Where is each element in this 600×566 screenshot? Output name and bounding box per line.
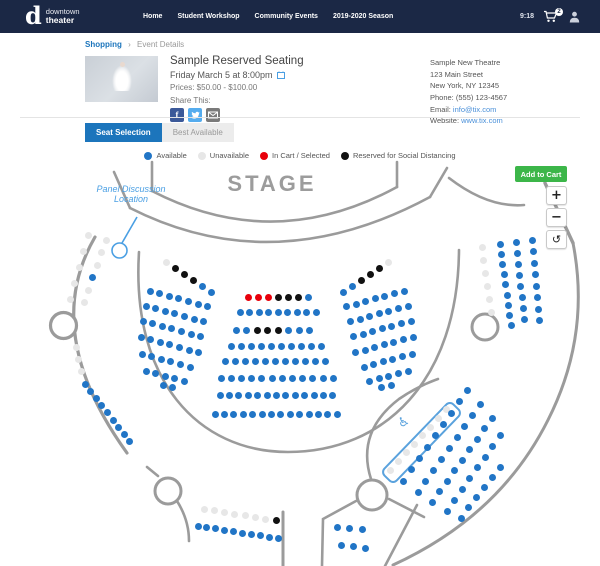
seat <box>67 296 74 303</box>
seat[interactable] <box>149 320 156 327</box>
seat[interactable] <box>185 298 192 305</box>
seat[interactable] <box>497 241 504 248</box>
seat[interactable] <box>93 395 100 402</box>
seat[interactable] <box>436 488 443 495</box>
seat[interactable] <box>459 457 466 464</box>
seat[interactable] <box>245 392 252 399</box>
seat[interactable] <box>482 454 489 461</box>
seat[interactable] <box>175 295 182 302</box>
seat[interactable] <box>265 309 272 316</box>
seat[interactable] <box>160 382 167 389</box>
seat[interactable] <box>104 409 111 416</box>
seat[interactable] <box>306 327 313 334</box>
seat[interactable] <box>334 411 341 418</box>
seat[interactable] <box>157 339 164 346</box>
seat[interactable] <box>266 534 273 541</box>
seat[interactable] <box>416 455 423 462</box>
seat[interactable] <box>474 436 481 443</box>
seat[interactable] <box>322 358 329 365</box>
seat[interactable] <box>238 343 245 350</box>
seat[interactable] <box>340 289 347 296</box>
seat[interactable] <box>430 467 437 474</box>
seat[interactable] <box>350 333 357 340</box>
seat[interactable] <box>195 349 202 356</box>
seat[interactable] <box>82 381 89 388</box>
seat <box>484 283 491 290</box>
seat[interactable] <box>444 508 451 515</box>
zoom-out-button[interactable]: − <box>546 208 567 227</box>
seat[interactable] <box>195 301 202 308</box>
seat <box>480 257 487 264</box>
seat[interactable] <box>315 411 322 418</box>
seat[interactable] <box>346 525 353 532</box>
seat[interactable] <box>167 358 174 365</box>
seat <box>273 517 280 524</box>
seat[interactable] <box>473 494 480 501</box>
seat[interactable] <box>515 261 522 268</box>
seat[interactable] <box>405 368 412 375</box>
seat[interactable] <box>444 478 451 485</box>
seat[interactable] <box>381 341 388 348</box>
seat[interactable] <box>309 375 316 382</box>
seat[interactable] <box>242 358 249 365</box>
seat <box>103 237 110 244</box>
seat <box>242 512 249 519</box>
seat[interactable] <box>380 358 387 365</box>
seat[interactable] <box>350 543 357 550</box>
seat[interactable] <box>536 317 543 324</box>
seat <box>275 327 282 334</box>
seat[interactable] <box>301 392 308 399</box>
seat[interactable] <box>143 368 150 375</box>
seat[interactable] <box>311 392 318 399</box>
seat[interactable] <box>230 411 237 418</box>
seat[interactable] <box>329 392 336 399</box>
seat[interactable] <box>385 373 392 380</box>
seat[interactable] <box>448 410 455 417</box>
seat[interactable] <box>177 361 184 368</box>
seat <box>85 287 92 294</box>
seat[interactable] <box>243 327 250 334</box>
seat[interactable] <box>408 318 415 325</box>
seat <box>403 449 410 456</box>
seat[interactable] <box>529 237 536 244</box>
seat[interactable] <box>188 331 195 338</box>
seat[interactable] <box>268 411 275 418</box>
seat <box>181 271 188 278</box>
seat[interactable] <box>362 347 369 354</box>
seat <box>285 294 292 301</box>
seat[interactable] <box>498 251 505 258</box>
seat[interactable] <box>390 339 397 346</box>
seat[interactable] <box>204 303 211 310</box>
seat[interactable] <box>181 313 188 320</box>
seat[interactable] <box>489 415 496 422</box>
seat[interactable] <box>292 358 299 365</box>
seat[interactable] <box>200 318 207 325</box>
seat[interactable] <box>381 293 388 300</box>
seat[interactable] <box>203 524 210 531</box>
seat[interactable] <box>255 294 262 301</box>
seat[interactable] <box>306 411 313 418</box>
seat[interactable] <box>218 375 225 382</box>
seat[interactable] <box>352 349 359 356</box>
seat[interactable] <box>278 343 285 350</box>
seat[interactable] <box>362 298 369 305</box>
seat[interactable] <box>212 525 219 532</box>
seat[interactable] <box>534 294 541 301</box>
seat[interactable] <box>446 445 453 452</box>
seat[interactable] <box>159 323 166 330</box>
page: d downtown theater Home Student Workshop… <box>0 0 600 566</box>
seat[interactable] <box>143 303 150 310</box>
seat[interactable] <box>440 421 447 428</box>
seat[interactable] <box>248 375 255 382</box>
seat[interactable] <box>465 504 472 511</box>
seat[interactable] <box>288 343 295 350</box>
seat[interactable] <box>451 497 458 504</box>
seat[interactable] <box>504 292 511 299</box>
seat <box>94 262 101 269</box>
seat[interactable] <box>275 535 282 542</box>
seat[interactable] <box>249 411 256 418</box>
seat[interactable] <box>320 375 327 382</box>
seat <box>76 264 83 271</box>
seat[interactable] <box>395 305 402 312</box>
seat[interactable] <box>257 532 264 539</box>
seat[interactable] <box>140 318 147 325</box>
seat[interactable] <box>228 375 235 382</box>
seat[interactable] <box>308 343 315 350</box>
seat[interactable] <box>252 358 259 365</box>
seat[interactable] <box>432 432 439 439</box>
seat-layer <box>0 0 600 566</box>
seat <box>358 277 365 284</box>
seat[interactable] <box>466 446 473 453</box>
seat[interactable] <box>208 289 215 296</box>
seat[interactable] <box>228 343 235 350</box>
seat[interactable] <box>459 486 466 493</box>
seat[interactable] <box>115 424 122 431</box>
seat <box>419 432 426 439</box>
seat[interactable] <box>152 370 159 377</box>
seat <box>221 509 228 516</box>
seat[interactable] <box>110 417 117 424</box>
seat <box>385 259 392 266</box>
seat <box>73 344 80 351</box>
seat[interactable] <box>169 384 176 391</box>
seat[interactable] <box>139 351 146 358</box>
seat[interactable] <box>395 370 402 377</box>
seat[interactable] <box>138 334 145 341</box>
seat[interactable] <box>408 466 415 473</box>
seat[interactable] <box>320 392 327 399</box>
seat[interactable] <box>89 274 96 281</box>
seat <box>254 327 261 334</box>
seat[interactable] <box>481 484 488 491</box>
seat[interactable] <box>514 250 521 257</box>
seat[interactable] <box>501 271 508 278</box>
seat[interactable] <box>330 375 337 382</box>
seat[interactable] <box>349 283 356 290</box>
seat[interactable] <box>212 411 219 418</box>
seat <box>163 259 170 266</box>
seat <box>78 368 85 375</box>
seat[interactable] <box>166 341 173 348</box>
seat[interactable] <box>258 343 265 350</box>
seat[interactable] <box>318 343 325 350</box>
seat[interactable] <box>232 358 239 365</box>
seat[interactable] <box>506 312 513 319</box>
seat[interactable] <box>282 358 289 365</box>
seat[interactable] <box>372 295 379 302</box>
seat[interactable] <box>388 382 395 389</box>
seat[interactable] <box>162 308 169 315</box>
seat[interactable] <box>535 306 542 313</box>
seat[interactable] <box>152 305 159 312</box>
seat[interactable] <box>334 524 341 531</box>
seat[interactable] <box>469 412 476 419</box>
seat[interactable] <box>474 464 481 471</box>
seat[interactable] <box>158 356 165 363</box>
seat[interactable] <box>176 344 183 351</box>
seat[interactable] <box>361 364 368 371</box>
seat[interactable] <box>156 290 163 297</box>
seat[interactable] <box>458 515 465 522</box>
reset-view-button[interactable]: ↺ <box>546 230 567 249</box>
seat[interactable] <box>268 343 275 350</box>
seat[interactable] <box>388 323 395 330</box>
seat[interactable] <box>429 499 436 506</box>
seat <box>262 516 269 523</box>
seat[interactable] <box>168 325 175 332</box>
seat[interactable] <box>338 542 345 549</box>
seat[interactable] <box>240 411 247 418</box>
seat <box>75 356 82 363</box>
seat[interactable] <box>324 411 331 418</box>
seat[interactable] <box>370 361 377 368</box>
seat[interactable] <box>191 316 198 323</box>
seat[interactable] <box>499 261 506 268</box>
seat[interactable] <box>186 347 193 354</box>
seat[interactable] <box>369 328 376 335</box>
seat[interactable] <box>181 378 188 385</box>
seat[interactable] <box>313 309 320 316</box>
seat <box>395 458 402 465</box>
seat[interactable] <box>410 334 417 341</box>
seat[interactable] <box>87 388 94 395</box>
seat[interactable] <box>533 283 540 290</box>
seat[interactable] <box>400 336 407 343</box>
seat[interactable] <box>415 489 422 496</box>
seat[interactable] <box>121 431 128 438</box>
seat[interactable] <box>262 358 269 365</box>
seat[interactable] <box>508 322 515 329</box>
seat <box>411 441 418 448</box>
seat[interactable] <box>401 288 408 295</box>
seat[interactable] <box>162 373 169 380</box>
seat[interactable] <box>256 309 263 316</box>
seat[interactable] <box>378 384 385 391</box>
seat[interactable] <box>259 411 266 418</box>
seat[interactable] <box>305 294 312 301</box>
seat[interactable] <box>222 358 229 365</box>
seat[interactable] <box>147 336 154 343</box>
seat[interactable] <box>454 434 461 441</box>
seat[interactable] <box>238 375 245 382</box>
seat[interactable] <box>178 328 185 335</box>
seat <box>387 467 394 474</box>
seat[interactable] <box>376 310 383 317</box>
seat[interactable] <box>245 294 252 301</box>
seat[interactable] <box>477 401 484 408</box>
seat <box>367 271 374 278</box>
seat[interactable] <box>296 411 303 418</box>
seat[interactable] <box>282 392 289 399</box>
seat[interactable] <box>239 530 246 537</box>
seat[interactable] <box>519 294 526 301</box>
seat[interactable] <box>171 375 178 382</box>
seat[interactable] <box>409 351 416 358</box>
seat[interactable] <box>233 327 240 334</box>
seat <box>71 280 78 287</box>
seat[interactable] <box>343 303 350 310</box>
seat <box>81 299 88 306</box>
seat[interactable] <box>379 325 386 332</box>
seat[interactable] <box>279 375 286 382</box>
seat[interactable] <box>400 478 407 485</box>
seat[interactable] <box>357 316 364 323</box>
seat <box>98 249 105 256</box>
seat[interactable] <box>451 467 458 474</box>
seat[interactable] <box>517 283 524 290</box>
seat[interactable] <box>376 375 383 382</box>
seat[interactable] <box>438 456 445 463</box>
seat[interactable] <box>516 272 523 279</box>
seat[interactable] <box>359 526 366 533</box>
seat[interactable] <box>195 523 202 530</box>
seat[interactable] <box>289 375 296 382</box>
seat[interactable] <box>422 478 429 485</box>
seat[interactable] <box>302 358 309 365</box>
seat[interactable] <box>456 398 463 405</box>
seat[interactable] <box>197 333 204 340</box>
seat[interactable] <box>497 464 504 471</box>
seat[interactable] <box>532 271 539 278</box>
seat[interactable] <box>360 331 367 338</box>
seat[interactable] <box>513 239 520 246</box>
seat[interactable] <box>277 411 284 418</box>
seat[interactable] <box>254 392 261 399</box>
seat[interactable] <box>296 327 303 334</box>
seat[interactable] <box>248 531 255 538</box>
seat[interactable] <box>366 378 373 385</box>
seat[interactable] <box>221 527 228 534</box>
seat <box>275 294 282 301</box>
seat[interactable] <box>391 290 398 297</box>
zoom-in-button[interactable]: + <box>546 186 567 205</box>
seat[interactable] <box>230 528 237 535</box>
seat[interactable] <box>258 375 265 382</box>
seat[interactable] <box>199 283 206 290</box>
seat[interactable] <box>481 425 488 432</box>
seat[interactable] <box>248 343 255 350</box>
seat <box>264 327 271 334</box>
seat[interactable] <box>265 294 272 301</box>
seat[interactable] <box>269 375 276 382</box>
seat[interactable] <box>298 343 305 350</box>
seat[interactable] <box>464 387 471 394</box>
seat <box>488 309 495 316</box>
seat[interactable] <box>246 309 253 316</box>
seat <box>376 265 383 272</box>
seat[interactable] <box>399 353 406 360</box>
seat[interactable] <box>285 327 292 334</box>
seat[interactable] <box>272 358 279 365</box>
seat[interactable] <box>147 288 154 295</box>
seat[interactable] <box>217 392 224 399</box>
seat[interactable] <box>405 303 412 310</box>
seat[interactable] <box>226 392 233 399</box>
seat[interactable] <box>371 344 378 351</box>
seat[interactable] <box>187 364 194 371</box>
seat[interactable] <box>264 392 271 399</box>
seat[interactable] <box>347 318 354 325</box>
seat[interactable] <box>530 248 537 255</box>
seat[interactable] <box>520 305 527 312</box>
seat[interactable] <box>497 432 504 439</box>
seat[interactable] <box>389 356 396 363</box>
seat[interactable] <box>398 320 405 327</box>
seat[interactable] <box>366 313 373 320</box>
seat[interactable] <box>312 358 319 365</box>
seat[interactable] <box>292 392 299 399</box>
seat[interactable] <box>275 309 282 316</box>
seat[interactable] <box>489 474 496 481</box>
seat[interactable] <box>148 353 155 360</box>
seat[interactable] <box>284 309 291 316</box>
seat[interactable] <box>126 438 133 445</box>
map-zoom-controls: + − ↺ <box>546 186 567 249</box>
seat[interactable] <box>362 545 369 552</box>
seat[interactable] <box>171 310 178 317</box>
seat[interactable] <box>235 392 242 399</box>
seat[interactable] <box>424 444 431 451</box>
seat[interactable] <box>353 301 360 308</box>
add-to-cart-button[interactable]: Add to Cart <box>515 166 567 182</box>
seat[interactable] <box>531 260 538 267</box>
seat[interactable] <box>294 309 301 316</box>
seat <box>486 296 493 303</box>
seat[interactable] <box>385 308 392 315</box>
seat[interactable] <box>287 411 294 418</box>
seat[interactable] <box>166 293 173 300</box>
seat <box>85 232 92 239</box>
seat[interactable] <box>303 309 310 316</box>
seat <box>80 248 87 255</box>
seat[interactable] <box>221 411 228 418</box>
seat[interactable] <box>505 302 512 309</box>
seat[interactable] <box>237 309 244 316</box>
seat[interactable] <box>466 475 473 482</box>
seat[interactable] <box>521 316 528 323</box>
seat[interactable] <box>273 392 280 399</box>
seat[interactable] <box>299 375 306 382</box>
seat[interactable] <box>502 281 509 288</box>
seat[interactable] <box>98 402 105 409</box>
seat[interactable] <box>461 423 468 430</box>
seat[interactable] <box>489 443 496 450</box>
